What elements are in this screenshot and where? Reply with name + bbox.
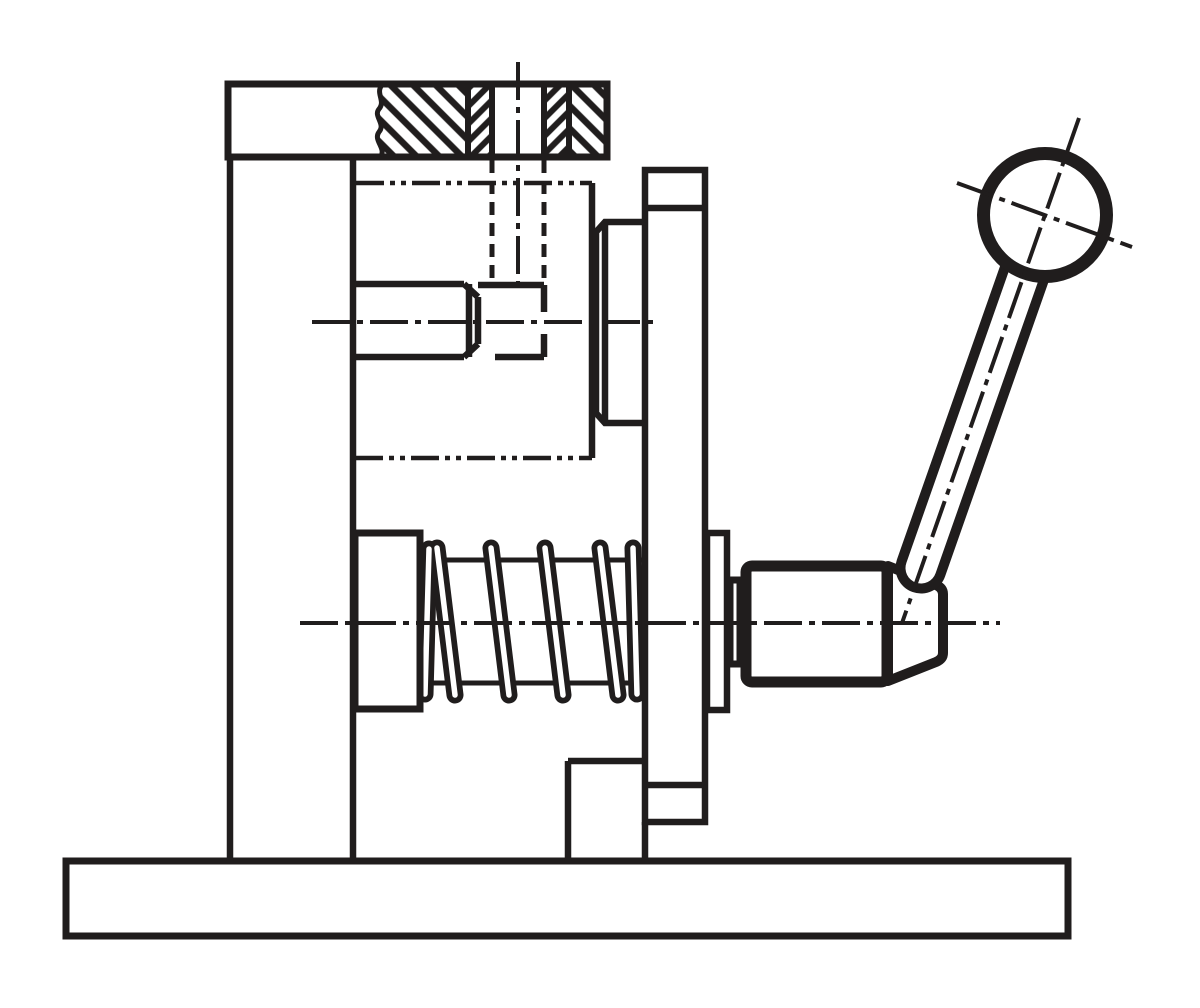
- section-hatch-left: [378, 86, 468, 155]
- bushing-hatch-right: [544, 86, 569, 155]
- technical-drawing-canvas: [0, 0, 1200, 1008]
- top-plate-sectioned: [228, 84, 607, 157]
- break-line-wavy: [377, 85, 382, 156]
- support-column: [230, 157, 353, 861]
- assembly-drawing: [0, 0, 1200, 1008]
- flange-plate-body: [645, 170, 705, 822]
- bracket-foot: [568, 761, 645, 861]
- flange-plate: [645, 170, 705, 822]
- bushing-hatch-left: [468, 86, 492, 155]
- base-plate: [66, 861, 1068, 936]
- section-hatch-right: [569, 86, 604, 155]
